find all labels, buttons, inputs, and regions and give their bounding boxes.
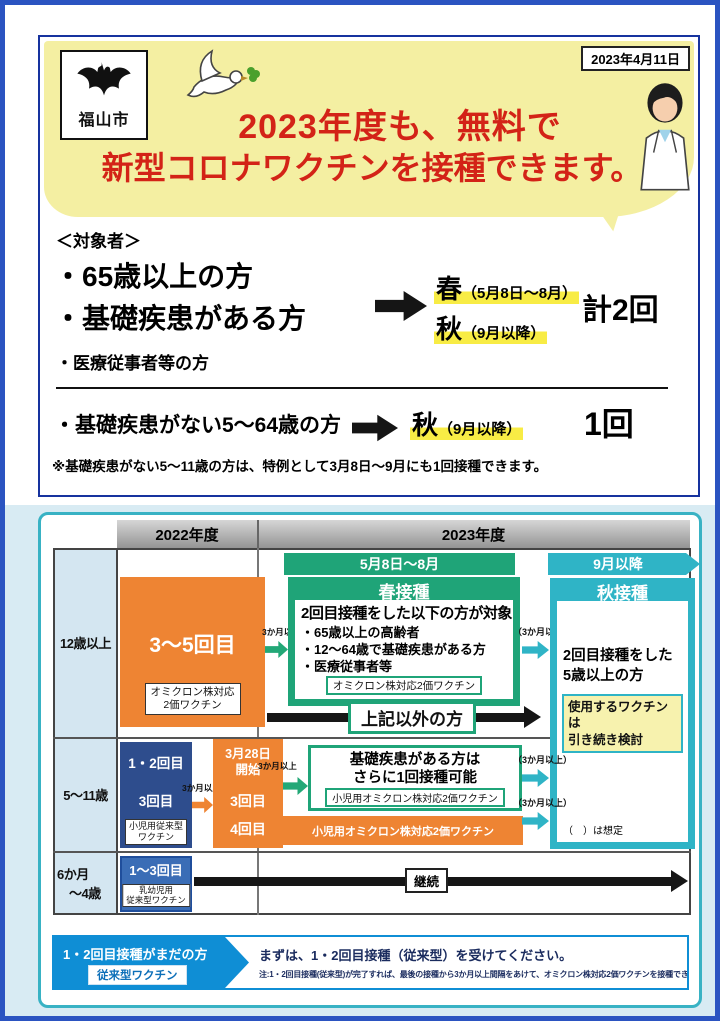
pediatric-conventional-tag: 小児用従来型 ワクチン [125, 819, 187, 846]
infant-conventional-tag: 乳幼児用 従来型ワクチン [122, 884, 190, 907]
continue-label: 継続 [405, 868, 448, 893]
unvaccinated-note: 注:1・2回目接種(従来型)が完了すれば、最後の接種から3か月以上間隔をあけて、… [259, 969, 689, 980]
conventional-vaccine-tag: 従来型ワクチン [88, 965, 187, 985]
year-2023-header: 2023年度 [257, 520, 690, 548]
unvaccinated-banner-left: 1・2回目接種がまだの方 従来型ワクチン [54, 937, 249, 988]
fukuyama-city-emblem-icon [74, 60, 134, 104]
spring-target-bullets: ・65歳以上の高齢者 ・12～64歳で基礎疾患がある方 ・医療従事者等 [301, 624, 507, 675]
eligibility-item-underlying: ・基礎疾患がある方 [54, 297, 306, 337]
spring-schedule: 春（5月8日～8月） [434, 269, 579, 306]
total-doses-group1: 計2回 [582, 285, 659, 329]
eligibility-item-65plus: ・65歳以上の方 [54, 255, 253, 295]
spring-target-heading: 2回目接種をした以下の方が対象 [301, 602, 507, 623]
autumn-period: （9月以降） [462, 325, 545, 342]
row-label-5to11: 5～11歳 [53, 737, 118, 851]
year-2022-header: 2022年度 [117, 520, 257, 548]
pediatric-bivalent-tag: 小児用オミクロン株対応2価ワクチン [325, 788, 505, 807]
spring-vaccination-box: 春接種 2回目接種をした以下の方が対象 ・65歳以上の高齢者 ・12～64歳で基… [288, 577, 520, 706]
section-divider [56, 387, 668, 389]
autumn-period-bar: 9月以降 [548, 553, 700, 575]
child-doses-1-2: 1・2回目 [120, 752, 192, 772]
underlying-condition-box: 基礎疾患がある方は さらに1回接種可能 小児用オミクロン株対応2価ワクチン [308, 745, 522, 811]
row-label-6mo-4y: 6か月 ～4歳 [53, 851, 118, 915]
autumn-schedule: 秋（9月以降） [434, 309, 547, 346]
spring-vaccination-content: 2回目接種をした以下の方が対象 ・65歳以上の高齢者 ・12～64歳で基礎疾患が… [295, 600, 513, 699]
fiscal-year-header: 2022年度 2023年度 [117, 520, 690, 548]
main-title-line2: 新型コロナワクチンを接種できます。 [50, 143, 694, 189]
issue-date: 2023年4月11日 [581, 46, 690, 71]
pediatric-bivalent-bar: 小児用オミクロン株対応2価ワクチン [283, 816, 523, 845]
doses-3to5-label: 3～5回目 [120, 629, 265, 659]
bullet-underlying: ・12～64歳で基礎疾患がある方 [301, 641, 507, 658]
bivalent-vaccine-tag: オミクロン株対応 2価ワクチン [145, 683, 241, 715]
assumption-note: （ ）は想定 [563, 822, 623, 837]
special-case-note: ※基礎疾患がない5～11歳の方は、特例として3月8日～9月にも1回接種できます。 [52, 455, 547, 475]
interval-label-r2-right1: （3か月以上） [513, 753, 572, 766]
autumn-schedule-group2: 秋（9月以降） [410, 405, 523, 442]
row-divider-2 [53, 851, 691, 853]
autumn-vaccination-content: 2回目接種をした 5歳以上の方 使用するワクチンは 引き続き検討 （ ）は想定 [557, 601, 688, 842]
autumn-label-2: 秋 [412, 410, 438, 440]
total-doses-group2: 1回 [584, 399, 634, 445]
infant-doses-box: 1～3回目 乳幼児用 従来型ワクチン [120, 856, 192, 912]
spring-vaccine-tag: オミクロン株対応2価ワクチン [326, 676, 482, 695]
autumn-period-2: （9月以降） [438, 421, 521, 438]
vaccine-under-review-note: 使用するワクチンは 引き続き検討 [562, 694, 683, 753]
autumn-label: 秋 [436, 314, 462, 344]
child-doses-box: 1・2回目 3回目 小児用従来型 ワクチン [120, 742, 192, 848]
right-arrow-icon [352, 413, 398, 443]
eligibility-heading: ＜対象者＞ [56, 227, 141, 252]
infant-doses-label: 1～3回目 [122, 860, 190, 879]
top-notice-panel: 2023年4月11日 福山市 2023年度も、無料で 新型コロナワクチンを接 [38, 35, 700, 497]
autumn-target: 2回目接種をした 5歳以上の方 [557, 601, 688, 686]
row-label-12plus: 12歳以上 [53, 548, 118, 737]
spring-period: （5月8日～8月） [462, 285, 577, 302]
unvaccinated-banner: 1・2回目接種がまだの方 従来型ワクチン まずは、1・2回目接種（従来型）を受け… [52, 935, 689, 990]
main-title-line1: 2023年度も、無料で [130, 99, 670, 148]
bullet-elderly: ・65歳以上の高齢者 [301, 624, 507, 641]
spring-label: 春 [436, 274, 462, 304]
others-label: 上記以外の方 [348, 701, 476, 734]
spring-period-bar: 5月8日～8月 [284, 553, 515, 575]
eligibility-item-healthy: ・基礎疾患がない5～64歳の方 [54, 409, 341, 439]
scanned-flyer-page: 2023年4月11日 福山市 2023年度も、無料で 新型コロナワクチンを接 [0, 0, 720, 1021]
right-arrow-icon [375, 289, 427, 323]
interval-label-r2b: 3か月以上 [258, 760, 297, 772]
unvaccinated-title: 1・2回目接種がまだの方 [63, 944, 207, 963]
bullet-medical: ・医療従事者等 [301, 658, 507, 675]
interval-label-r2-right2: （3か月以上） [513, 796, 572, 809]
city-logo-label: 福山市 [78, 106, 129, 130]
timeline-panel: 2022年度 2023年度 12歳以上 5～11歳 6か月 ～4歳 5月8日～8… [38, 512, 702, 1008]
eligibility-item-medical: ・医療従事者等の方 [56, 349, 209, 374]
march28-start-box: 3月28日 開始 3回目 4回目 [213, 739, 283, 848]
doses-3to5-box: 3～5回目 オミクロン株対応 2価ワクチン [120, 577, 265, 727]
unvaccinated-instruction: まずは、1・2回目接種（従来型）を受けてください。 [259, 945, 572, 964]
